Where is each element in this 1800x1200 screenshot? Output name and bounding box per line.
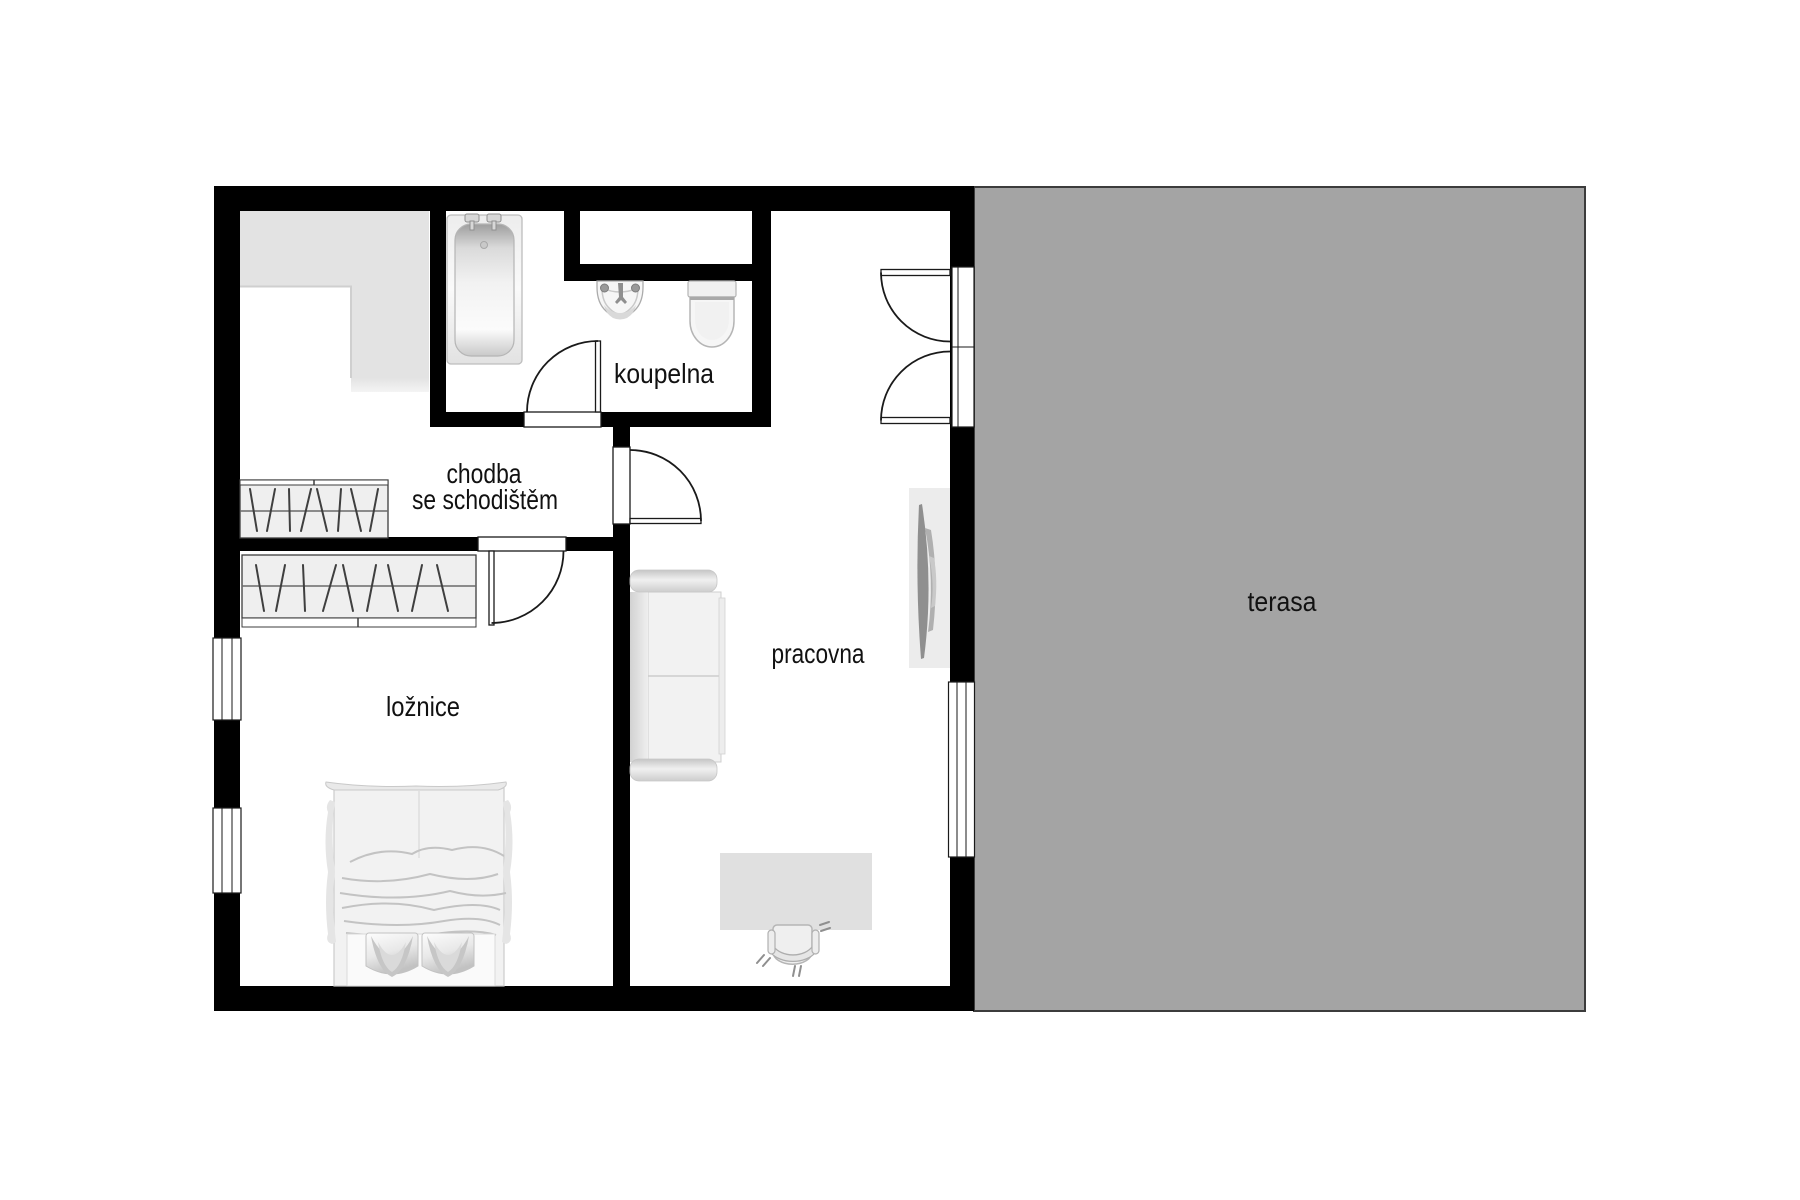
svg-text:se schodištěm: se schodištěm [412,484,558,515]
svg-text:pracovna: pracovna [772,638,865,669]
svg-text:terasa: terasa [1248,586,1317,617]
svg-text:ložnice: ložnice [386,691,460,722]
svg-text:koupelna: koupelna [614,358,714,389]
